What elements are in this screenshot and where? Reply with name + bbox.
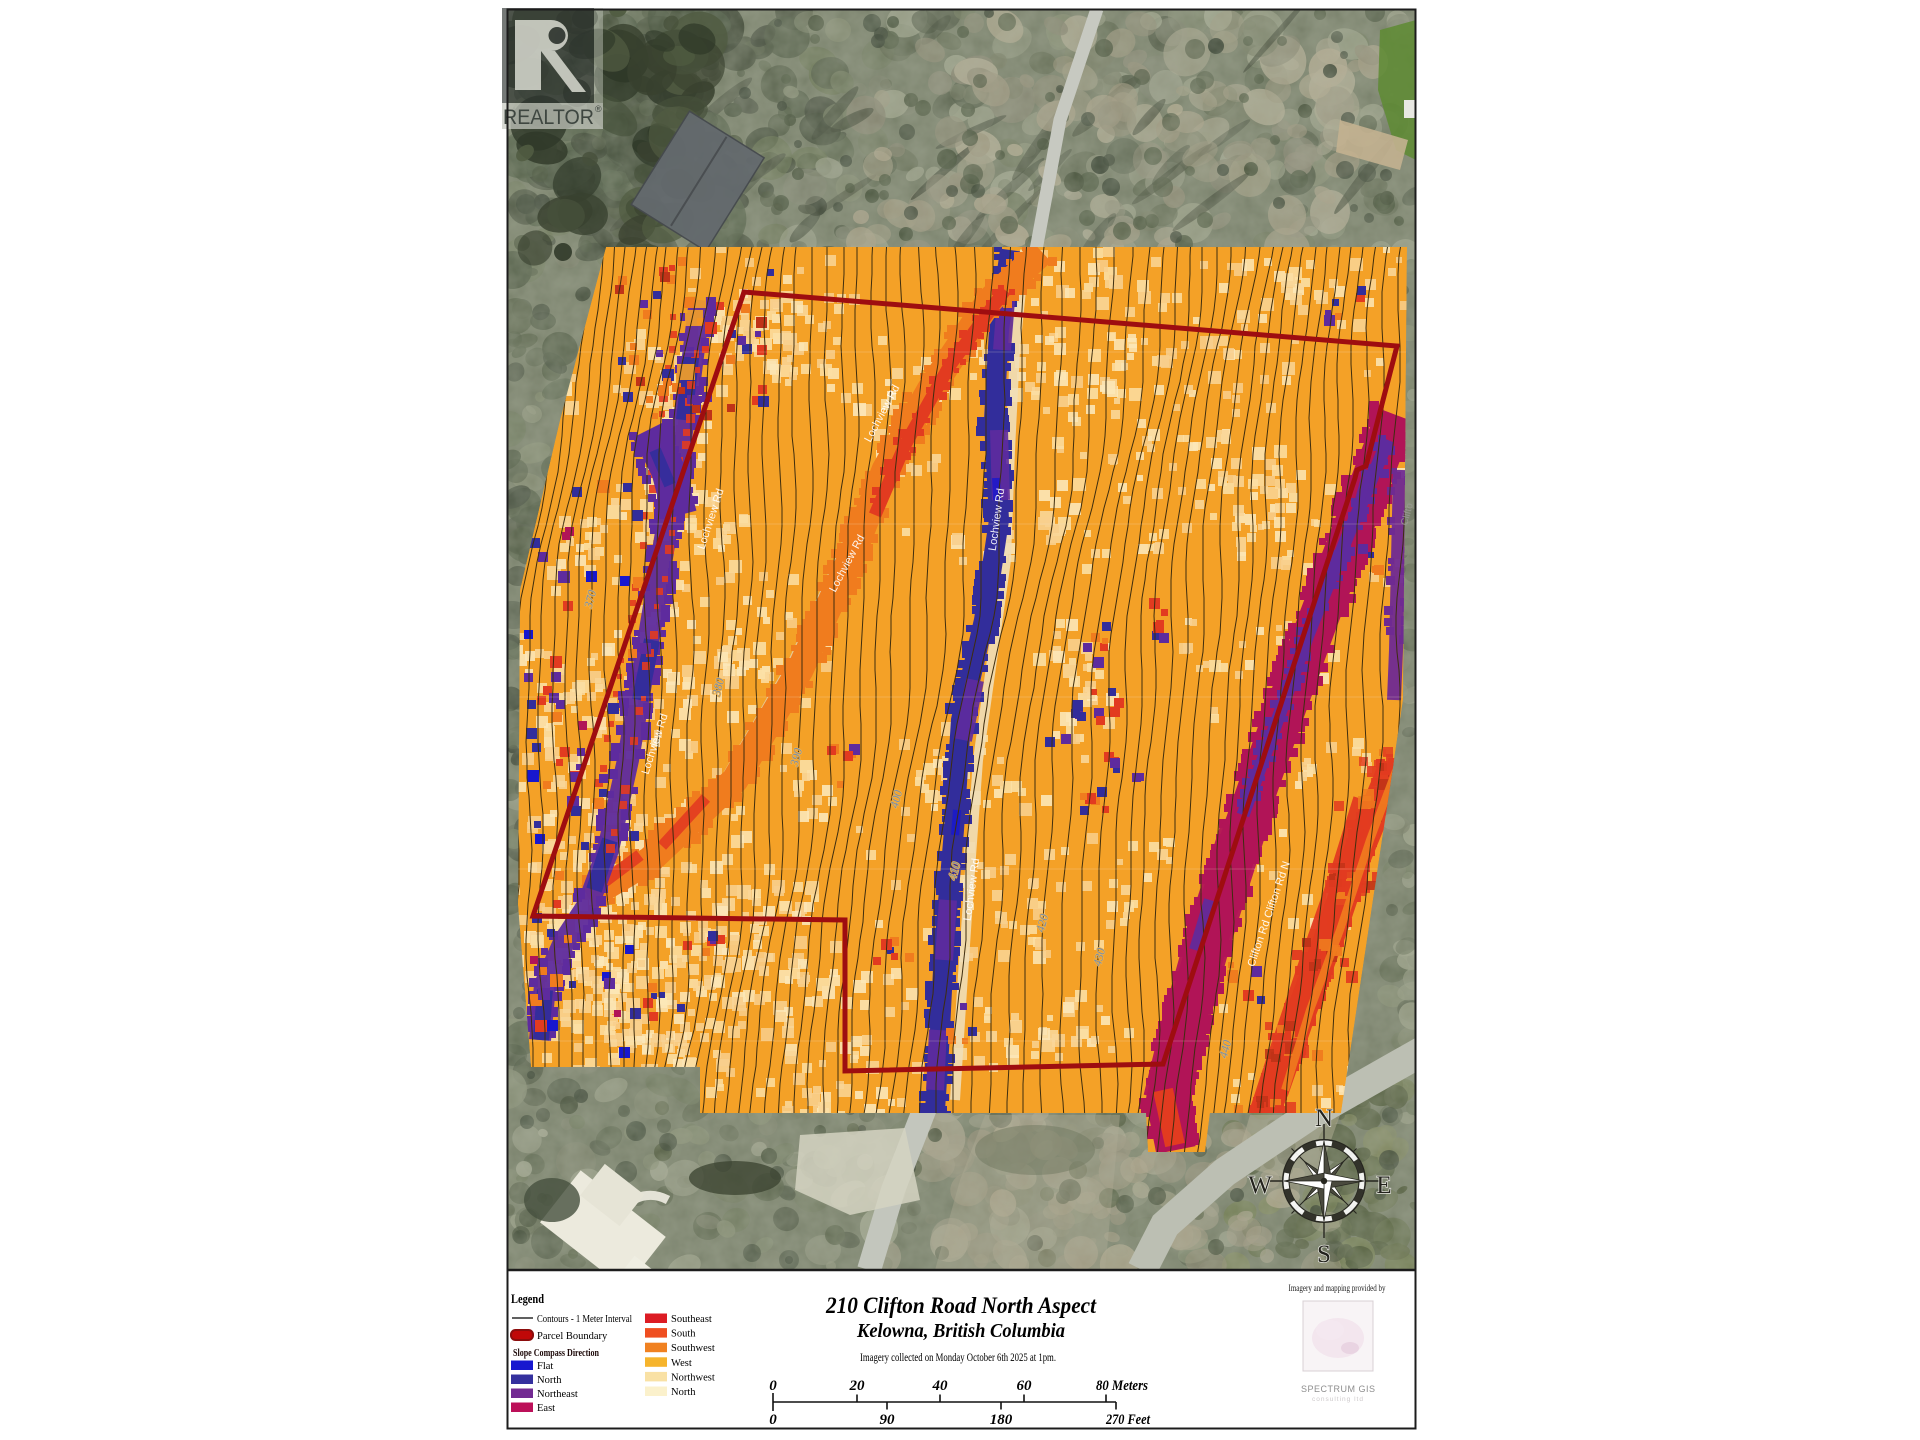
svg-text:Legend: Legend — [511, 1291, 545, 1306]
svg-text:®: ® — [595, 104, 602, 114]
svg-text:East: East — [537, 1403, 555, 1414]
svg-text:N: N — [1315, 1105, 1333, 1132]
svg-text:Northeast: Northeast — [537, 1389, 578, 1400]
svg-text:North: North — [537, 1375, 562, 1386]
svg-text:S: S — [1317, 1241, 1331, 1268]
svg-text:Northwest: Northwest — [671, 1372, 715, 1383]
svg-text:Southwest: Southwest — [671, 1343, 715, 1354]
svg-text:consulting ltd: consulting ltd — [1312, 1396, 1364, 1403]
svg-text:80 Meters: 80 Meters — [1096, 1378, 1148, 1394]
svg-text:0: 0 — [769, 1378, 777, 1394]
svg-text:Kelowna, British Columbia: Kelowna, British Columbia — [856, 1321, 1065, 1342]
svg-text:270 Feet: 270 Feet — [1105, 1412, 1150, 1428]
svg-text:Imagery collected on Monday Oc: Imagery collected on Monday October 6th … — [860, 1350, 1056, 1364]
svg-text:SPECTRUM GIS: SPECTRUM GIS — [1301, 1384, 1375, 1394]
svg-text:Imagery and mapping provided b: Imagery and mapping provided by — [1289, 1283, 1386, 1293]
svg-text:E: E — [1376, 1172, 1391, 1199]
svg-text:West: West — [671, 1358, 692, 1369]
svg-text:REALTOR: REALTOR — [503, 105, 594, 129]
svg-text:Slope Compass Direction: Slope Compass Direction — [513, 1348, 599, 1359]
svg-text:90: 90 — [880, 1412, 896, 1428]
svg-text:South: South — [671, 1329, 696, 1340]
svg-text:20: 20 — [849, 1378, 866, 1394]
svg-text:60: 60 — [1017, 1378, 1033, 1394]
svg-text:Contours - 1 Meter Interval: Contours - 1 Meter Interval — [537, 1314, 632, 1325]
svg-text:Southeast: Southeast — [671, 1314, 712, 1325]
svg-text:W: W — [1248, 1172, 1272, 1199]
svg-text:40: 40 — [932, 1378, 949, 1394]
svg-text:180: 180 — [990, 1412, 1013, 1428]
svg-text:Parcel Boundary: Parcel Boundary — [537, 1331, 608, 1342]
svg-text:0: 0 — [769, 1412, 777, 1428]
svg-text:Flat: Flat — [537, 1361, 553, 1372]
svg-text:North: North — [671, 1387, 696, 1398]
svg-text:210 Clifton Road North Aspect: 210 Clifton Road North Aspect — [825, 1293, 1096, 1318]
